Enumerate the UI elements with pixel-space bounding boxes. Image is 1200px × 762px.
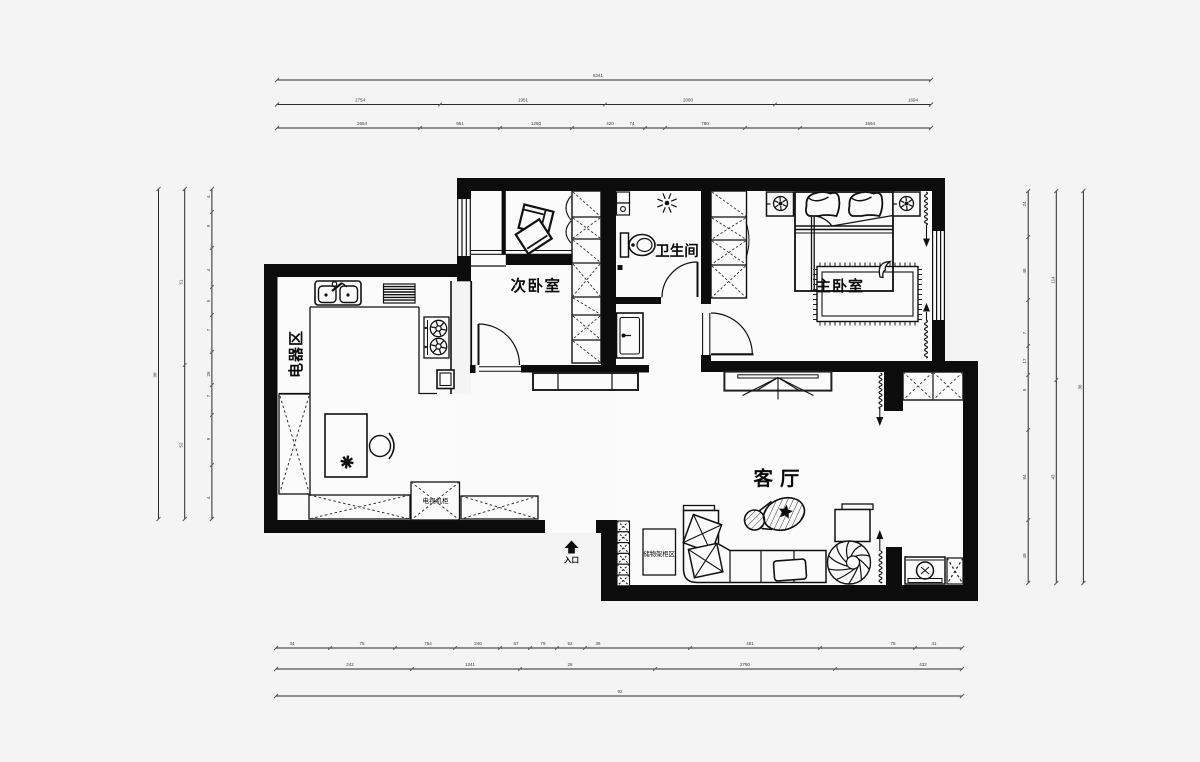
svg-text:51: 51 [179, 279, 184, 285]
svg-text:41: 41 [931, 641, 937, 646]
svg-text:67: 67 [513, 641, 519, 646]
svg-text:1951: 1951 [518, 98, 529, 103]
svg-text:电器区: 电器区 [287, 330, 305, 378]
svg-text:79: 79 [540, 641, 546, 646]
svg-text:951: 951 [456, 121, 464, 126]
svg-text:74: 74 [629, 121, 635, 126]
svg-text:36: 36 [1077, 384, 1082, 390]
svg-text:17: 17 [1022, 358, 1027, 364]
svg-text:2654: 2654 [357, 121, 368, 126]
svg-text:242: 242 [346, 662, 354, 667]
svg-text:114: 114 [1050, 276, 1055, 284]
svg-text:2080: 2080 [683, 98, 694, 103]
svg-text:1280: 1280 [531, 121, 542, 126]
svg-text:432: 432 [919, 662, 927, 667]
svg-text:75: 75 [890, 641, 896, 646]
svg-text:客厅: 客厅 [753, 467, 806, 490]
svg-text:48: 48 [1022, 268, 1027, 274]
svg-text:卫生间: 卫生间 [655, 242, 699, 260]
svg-text:主卧室: 主卧室 [816, 277, 864, 295]
svg-text:次卧室: 次卧室 [510, 276, 561, 295]
svg-text:780: 780 [701, 121, 709, 126]
svg-text:1694: 1694 [908, 98, 919, 103]
svg-text:1594: 1594 [865, 121, 876, 126]
svg-text:36: 36 [595, 641, 601, 646]
svg-text:75: 75 [359, 641, 365, 646]
svg-text:电视机柜: 电视机柜 [423, 496, 450, 505]
svg-text:储物架柜区: 储物架柜区 [643, 549, 674, 558]
svg-text:52: 52 [179, 442, 184, 448]
svg-text:52: 52 [567, 641, 573, 646]
svg-text:84: 84 [1022, 474, 1027, 480]
svg-text:43: 43 [1050, 474, 1055, 480]
svg-text:92: 92 [617, 689, 623, 694]
svg-text:98: 98 [153, 372, 158, 378]
svg-text:26: 26 [206, 371, 211, 377]
svg-text:入口: 入口 [563, 556, 579, 565]
svg-text:2790: 2790 [740, 662, 751, 667]
svg-text:2754: 2754 [355, 98, 366, 103]
svg-text:1341: 1341 [465, 662, 476, 667]
svg-text:754: 754 [424, 641, 432, 646]
svg-text:420: 420 [606, 121, 614, 126]
svg-text:240: 240 [474, 641, 482, 646]
svg-text:8241: 8241 [593, 73, 604, 78]
svg-text:481: 481 [746, 641, 754, 646]
svg-text:26: 26 [567, 662, 573, 667]
svg-text:34: 34 [289, 641, 295, 646]
svg-text:49: 49 [1022, 553, 1027, 559]
svg-text:24: 24 [1022, 201, 1027, 207]
